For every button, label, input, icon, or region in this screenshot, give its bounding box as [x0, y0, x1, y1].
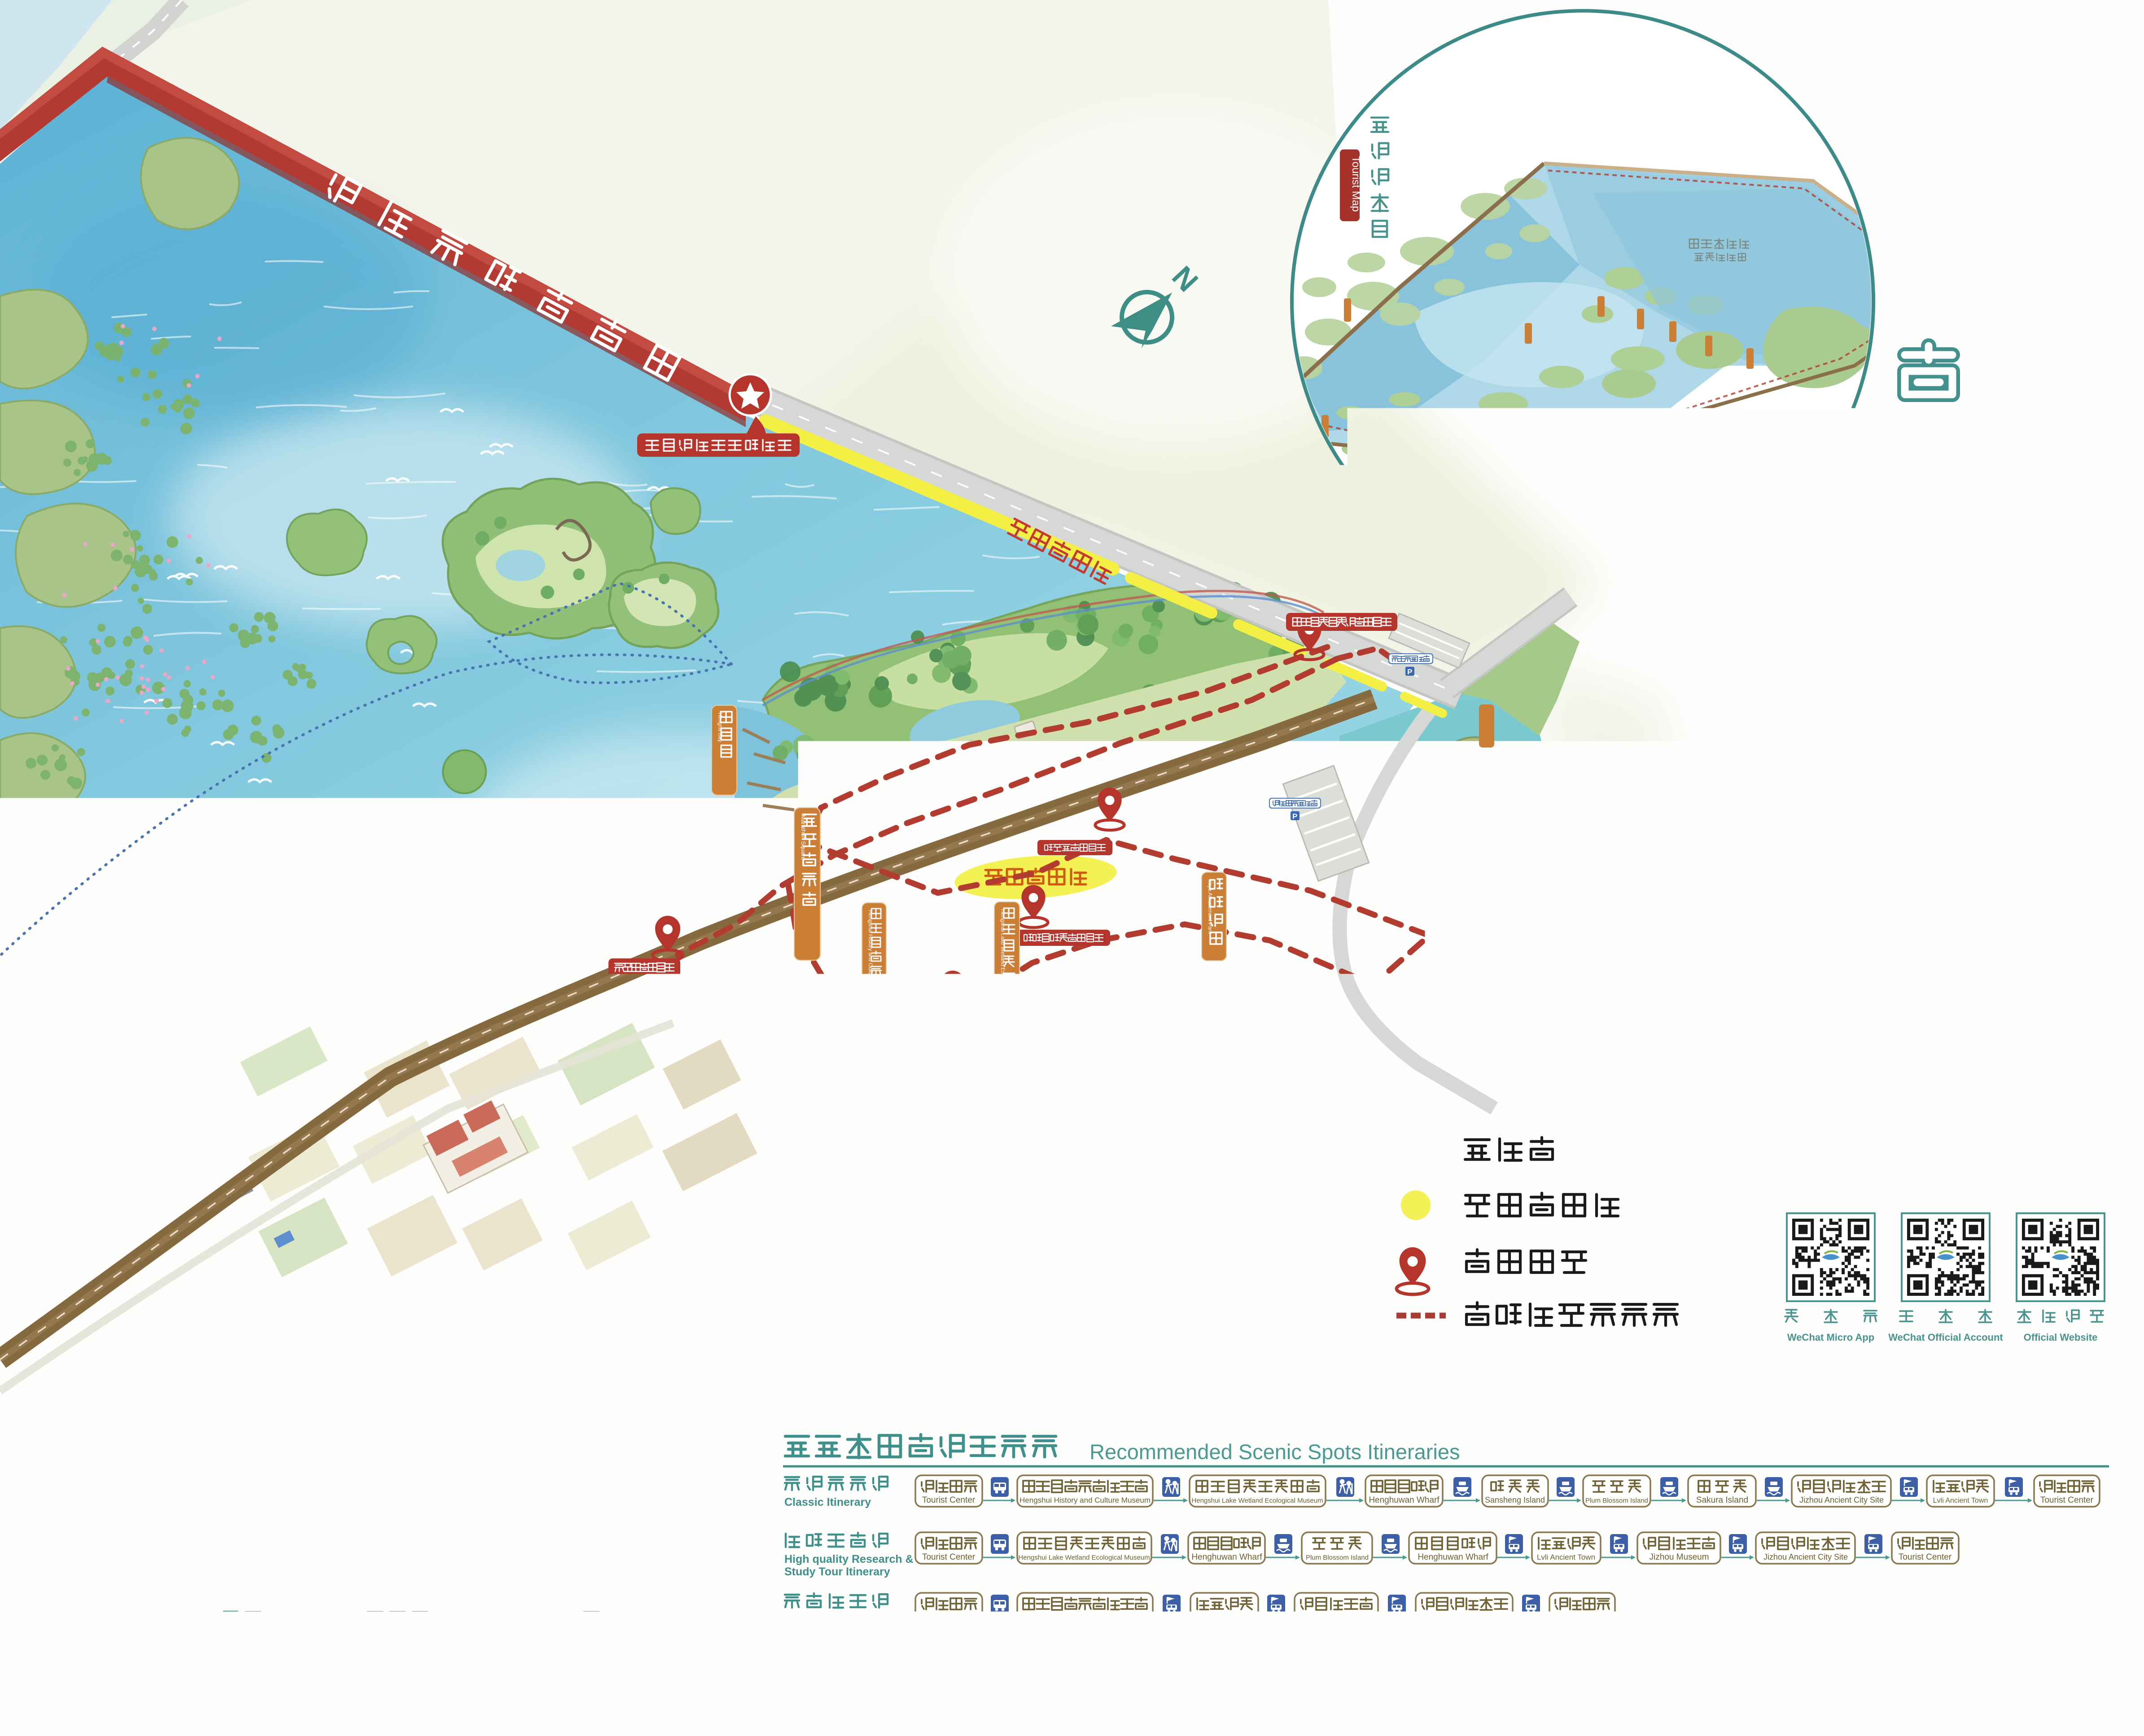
svg-text:Henghuwan Wharf: Henghuwan Wharf [1418, 1552, 1488, 1562]
svg-text:Tourist Center: Tourist Center [922, 1671, 976, 1681]
svg-text:P: P [1292, 812, 1297, 821]
svg-text:Jizhou Ancient City Site: Jizhou Ancient City Site [1763, 1552, 1848, 1561]
svg-text:Jizhou Museum: Jizhou Museum [1306, 1613, 1366, 1622]
svg-text:0318-2986688: 0318-2986688 [170, 1666, 315, 1691]
svg-text:Henghuwan Wharf: Henghuwan Wharf [1469, 1671, 1540, 1681]
svg-text:WeChat Official Account: WeChat Official Account [1888, 1332, 2003, 1343]
svg-text:Inquiry Hotline: Inquiry Hotline [198, 1633, 287, 1649]
svg-text:Tourist Center: Tourist Center [922, 1613, 976, 1622]
svg-text:Plum Blossom Island: Plum Blossom Island [1585, 1497, 1648, 1504]
svg-text:Tourist Map: Tourist Map [1350, 156, 1362, 212]
svg-text:Tourist Center: Tourist Center [1899, 1552, 1952, 1562]
svg-text:Plum Blossom Island: Plum Blossom Island [1306, 1554, 1369, 1561]
svg-text:Official Website: Official Website [2024, 1332, 2098, 1343]
svg-text:Jizhou Ancient City Site: Jizhou Ancient City Site [1799, 1495, 1884, 1504]
svg-text:Henghu Bay: Henghu Bay [717, 713, 723, 742]
svg-text:P: P [1399, 1129, 1426, 1175]
svg-text:Sansheng Island: Sansheng Island [1485, 1495, 1545, 1504]
svg-text:Classic Itinerary: Classic Itinerary [784, 1496, 871, 1509]
svg-text:Cultural Tour Itinerary: Cultural Tour Itinerary [784, 1614, 901, 1626]
svg-text:Henghuwan Wharf: Henghuwan Wharf [1369, 1495, 1440, 1505]
svg-text:Hengshui History and Culture M: Hengshui History and Culture Museum [867, 910, 874, 1002]
svg-text:Complaint Hotline: Complaint Hotline [354, 1633, 464, 1649]
svg-text:0318-2216688: 0318-2216688 [337, 1666, 482, 1691]
svg-text:Tourist Center: Tourist Center [1590, 1671, 1644, 1681]
svg-text:Tourist Center: Tourist Center [2040, 1495, 2094, 1505]
svg-text:Sakura Island: Sakura Island [1265, 1671, 1317, 1681]
svg-text:Sansheng Island: Sansheng Island [1365, 1671, 1429, 1681]
svg-text:WeChat Micro App: WeChat Micro App [1787, 1332, 1874, 1343]
svg-text:P: P [1407, 668, 1412, 676]
svg-text:P: P [925, 1045, 930, 1053]
svg-text:Tourist Center: Tourist Center [922, 1495, 976, 1505]
svg-text:Marathon Square: Marathon Square [800, 815, 807, 860]
svg-text:Lvli Ancient Town: Lvli Ancient Town [1933, 1497, 1988, 1504]
svg-text:Lvli Ancient Town: Lvli Ancient Town [1195, 1614, 1253, 1622]
svg-text:Henghuwan Wharf: Henghuwan Wharf [1143, 1671, 1214, 1681]
svg-text:0318-2156688: 0318-2156688 [508, 1666, 653, 1691]
svg-text:Hengshui Lake Wetland Ecologic: Hengshui Lake Wetland Ecological Museum [1018, 1554, 1150, 1561]
svg-text:Tourist Center: Tourist Center [1556, 1613, 1609, 1622]
svg-text:Henghuwan Wharf: Henghuwan Wharf [1191, 1552, 1262, 1562]
svg-text:Tourist Center: Tourist Center [922, 1552, 976, 1562]
svg-text:Hengshui History and Culture M: Hengshui History and Culture Museum [1019, 1496, 1151, 1504]
svg-text:Study Tour Itinerary: Study Tour Itinerary [784, 1565, 890, 1578]
svg-text:Jizhou Museum: Jizhou Museum [1649, 1552, 1709, 1562]
svg-text:Hengshui History and Culture M: Hengshui History and Culture Museum [1019, 1614, 1151, 1622]
svg-text:Jizhou Ancient City Site: Jizhou Ancient City Site [1424, 1614, 1504, 1622]
svg-text:Family Tour Itinerary: Family Tour Itinerary [784, 1672, 895, 1684]
svg-text:Hengshui Lake Wetland Ecologic: Hengshui Lake Wetland Ecological Museum [1191, 1497, 1323, 1504]
svg-text:Yaya Amusement Park: Yaya Amusement Park [1207, 879, 1213, 934]
svg-text:Yaya Amusement Park: Yaya Amusement Park [1016, 1671, 1102, 1681]
svg-text:Hengshui Lake Wetland Ecologic: Hengshui Lake Wetland Ecological Museum [1000, 909, 1006, 1014]
svg-text:Lvli Ancient Town: Lvli Ancient Town [1537, 1553, 1595, 1561]
svg-text:Sakura Island: Sakura Island [1696, 1495, 1748, 1505]
svg-text:Recommended Scenic Spots Itine: Recommended Scenic Spots Itineraries [1090, 1440, 1460, 1464]
svg-text:High quality Research &: High quality Research & [784, 1553, 914, 1565]
svg-text:Emergency Hotline: Emergency Hotline [522, 1633, 639, 1649]
